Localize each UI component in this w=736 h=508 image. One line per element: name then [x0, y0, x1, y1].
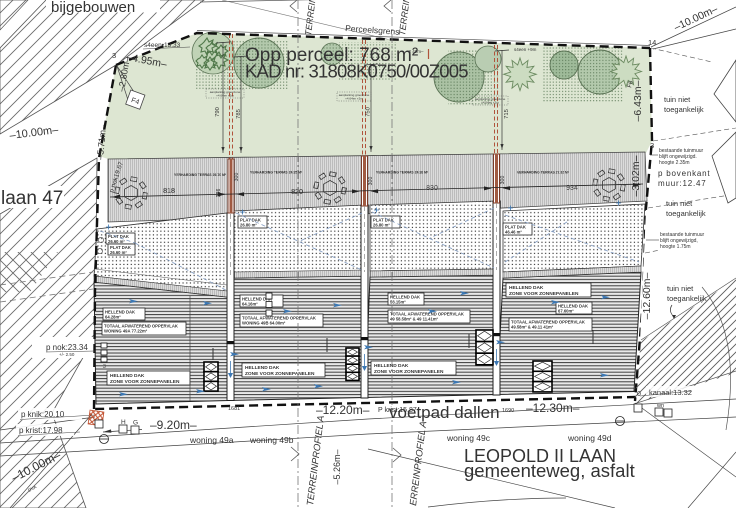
svg-text:3: 3 [112, 51, 116, 60]
svg-text:–6.43m–: –6.43m– [632, 80, 644, 121]
svg-text:toegankelijk: toegankelijk [666, 209, 706, 218]
svg-text:26.80 m²: 26.80 m² [373, 223, 390, 228]
svg-text:WONING 49B 64.00m²: WONING 49B 64.00m² [242, 321, 286, 326]
svg-text:p bovenkant: p bovenkant [658, 169, 710, 178]
svg-text:26.60 m²: 26.60 m² [108, 239, 125, 244]
svg-text:785: 785 [236, 109, 242, 119]
svg-text:386: 386 [216, 189, 222, 198]
svg-text:26.60 m²: 26.60 m² [110, 250, 127, 255]
svg-text:kanaal:13.32: kanaal:13.32 [649, 388, 692, 397]
svg-text:–5.26m–: –5.26m– [332, 449, 342, 484]
svg-text:–12.30m–: –12.30m– [526, 401, 580, 415]
svg-text:woning 49d: woning 49d [567, 433, 612, 443]
svg-text:3: 3 [103, 364, 106, 370]
svg-text:+4.64en +2m: +4.64en +2m [481, 101, 499, 105]
svg-text:p krist:17.98: p krist:17.98 [19, 426, 63, 435]
svg-text:VERHARDING TERRAS 24.38 M²: VERHARDING TERRAS 24.38 M² [376, 171, 429, 175]
svg-text:49 58.58m² & 49 11.41m²: 49 58.58m² & 49 11.41m² [390, 317, 439, 322]
svg-text:830: 830 [426, 185, 438, 192]
svg-text:750: 750 [366, 107, 372, 117]
svg-text:woning 49b: woning 49b [249, 435, 294, 445]
svg-text:–12.60m–: –12.60m– [641, 272, 653, 319]
svg-text:muur:12.47: muur:12.47 [658, 179, 706, 188]
svg-text:HELLEND DAK: HELLEND DAK [509, 285, 544, 291]
svg-text:VERHARDING TERRAS 27.82 M²: VERHARDING TERRAS 27.82 M² [517, 171, 570, 175]
svg-text:300: 300 [234, 173, 240, 182]
svg-text:voetpad dallen: voetpad dallen [389, 403, 500, 422]
svg-text:ZONE VOOR ZONNEPANELEN: ZONE VOOR ZONNEPANELEN [245, 371, 315, 377]
svg-text:1681: 1681 [228, 406, 240, 412]
svg-text:bijgebouwen: bijgebouwen [51, 0, 135, 16]
svg-text:gemeenteweg, asfalt: gemeenteweg, asfalt [464, 460, 635, 481]
svg-text:toegankelijk: toegankelijk [667, 294, 707, 303]
svg-text:0: 0 [637, 391, 641, 398]
svg-text:64.28m²: 64.28m² [105, 315, 121, 320]
svg-text:+4.64en +2m: +4.64en +2m [216, 94, 234, 98]
svg-text:laan 47: laan 47 [1, 188, 63, 209]
svg-text:26.80 m²: 26.80 m² [240, 223, 257, 228]
svg-text:1690: 1690 [502, 408, 514, 414]
svg-text:–9.20m–: –9.20m– [150, 418, 197, 432]
svg-text:HELLEND DAK: HELLEND DAK [245, 365, 280, 371]
svg-text:tuin niet: tuin niet [664, 95, 691, 104]
svg-text:53.15m²: 53.15m² [390, 300, 406, 305]
svg-text:woning 49a: woning 49a [189, 435, 234, 445]
svg-text:14: 14 [648, 38, 656, 47]
svg-text:820: 820 [291, 189, 303, 196]
svg-text:790: 790 [215, 107, 221, 117]
svg-text:tuin niet: tuin niet [667, 284, 694, 293]
svg-text:3: 3 [650, 141, 654, 150]
svg-text:300: 300 [500, 176, 506, 185]
svg-text:67.60m²: 67.60m² [558, 309, 574, 314]
svg-text:HELLEND DAK: HELLEND DAK [110, 373, 145, 379]
svg-text:KAD nr: 31808K0750/00Z005: KAD nr: 31808K0750/00Z005 [245, 61, 468, 82]
svg-text:ZONE VOOR ZONNEPANELEN: ZONE VOOR ZONNEPANELEN [509, 291, 579, 297]
svg-text:715: 715 [504, 109, 510, 119]
svg-text:p nok:23.34: p nok:23.34 [46, 343, 88, 352]
svg-text:46.46 m²: 46.46 m² [505, 230, 522, 235]
svg-text:H: H [121, 419, 126, 426]
svg-text:–12.20m–: –12.20m– [316, 403, 370, 417]
svg-text:+4.64en +2m: +4.64en +2m [345, 97, 363, 101]
svg-text:woning 49c: woning 49c [446, 433, 491, 443]
svg-text:–3.02m–: –3.02m– [630, 155, 642, 196]
svg-text:49.58m² & 49.11 41m²: 49.58m² & 49.11 41m² [511, 325, 554, 330]
svg-text:hoogte 1.75m: hoogte 1.75m [660, 244, 691, 250]
svg-text:WONING 49A 77.22m²: WONING 49A 77.22m² [104, 329, 148, 334]
svg-text:ZONE VOOR ZONNEPANELEN: ZONE VOOR ZONNEPANELEN [110, 379, 180, 385]
svg-text:934: 934 [566, 185, 578, 192]
svg-text:G: G [133, 420, 138, 427]
svg-text:ZONE VOOR ZONNEPANELEN: ZONE VOOR ZONNEPANELEN [374, 369, 444, 375]
svg-text:VERHARDING TERRAS 26.70 M²: VERHARDING TERRAS 26.70 M² [174, 173, 227, 177]
svg-text:VERHARDING TERRAS 24.35 M²: VERHARDING TERRAS 24.35 M² [250, 171, 303, 175]
svg-text:64.16m²: 64.16m² [242, 302, 258, 307]
svg-text:tuin niet: tuin niet [666, 199, 693, 208]
svg-text:300: 300 [368, 177, 374, 186]
svg-text:818: 818 [163, 188, 175, 195]
svg-text:+/- 2.50: +/- 2.50 [59, 352, 75, 357]
svg-text:s4een +9m: s4een +9m [514, 47, 537, 52]
svg-text:p knik:20.10: p knik:20.10 [21, 410, 65, 419]
svg-text:toegankelijk: toegankelijk [664, 105, 704, 114]
svg-text:HELLEND DAK: HELLEND DAK [374, 363, 409, 369]
svg-text:hoogte 2.35m: hoogte 2.35m [659, 160, 690, 166]
